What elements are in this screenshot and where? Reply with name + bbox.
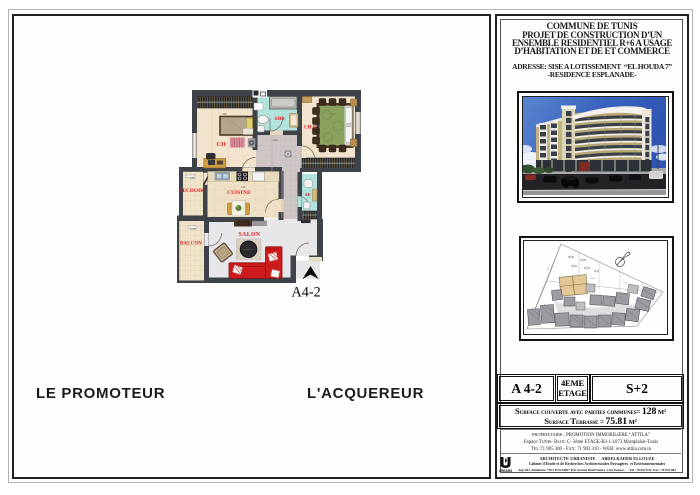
svg-text:BALCON: BALCON [180,242,202,247]
svg-text:SDB: SDB [275,117,286,122]
svg-text:240: 240 [273,138,278,142]
svg-text:CH: CH [217,142,227,148]
svg-text:340: 340 [222,112,227,116]
svg-text:410: 410 [241,185,246,189]
svg-text:SECHOIR: SECHOIR [180,188,205,194]
svg-text:CH.P: CH.P [304,126,316,131]
svg-text:140: 140 [191,227,196,231]
svg-text:170: 170 [330,112,335,116]
svg-text:CREARS: CREARS [499,469,512,473]
svg-text:140: 140 [190,176,195,180]
svg-text:SE: SE [305,192,311,197]
svg-text:A4-2: A4-2 [292,284,321,300]
svg-text:CUISINE: CUISINE [227,190,251,196]
svg-text:32.50: 32.50 [590,278,596,280]
svg-text:SALON: SALON [239,232,261,238]
